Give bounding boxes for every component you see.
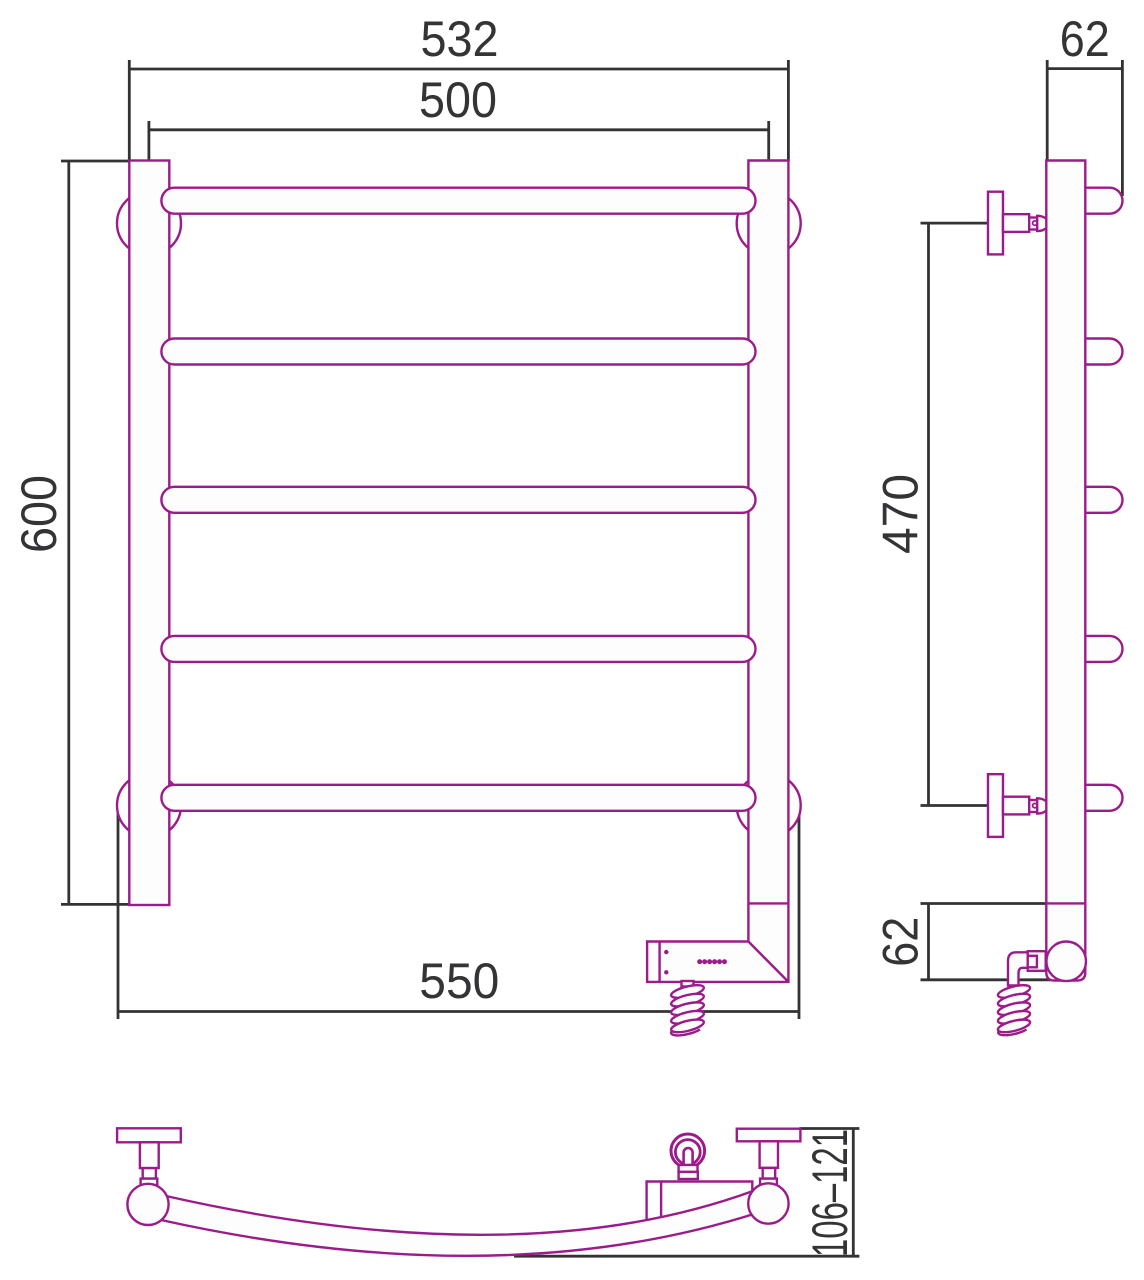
svg-text:550: 550 bbox=[419, 953, 499, 1009]
svg-text:500: 500 bbox=[419, 72, 497, 128]
svg-text:106–121: 106–121 bbox=[802, 1129, 858, 1257]
svg-text:600: 600 bbox=[11, 475, 67, 553]
svg-text:62: 62 bbox=[873, 917, 929, 967]
svg-text:470: 470 bbox=[873, 474, 929, 554]
svg-text:532: 532 bbox=[421, 11, 499, 67]
svg-text:62: 62 bbox=[1060, 11, 1110, 67]
